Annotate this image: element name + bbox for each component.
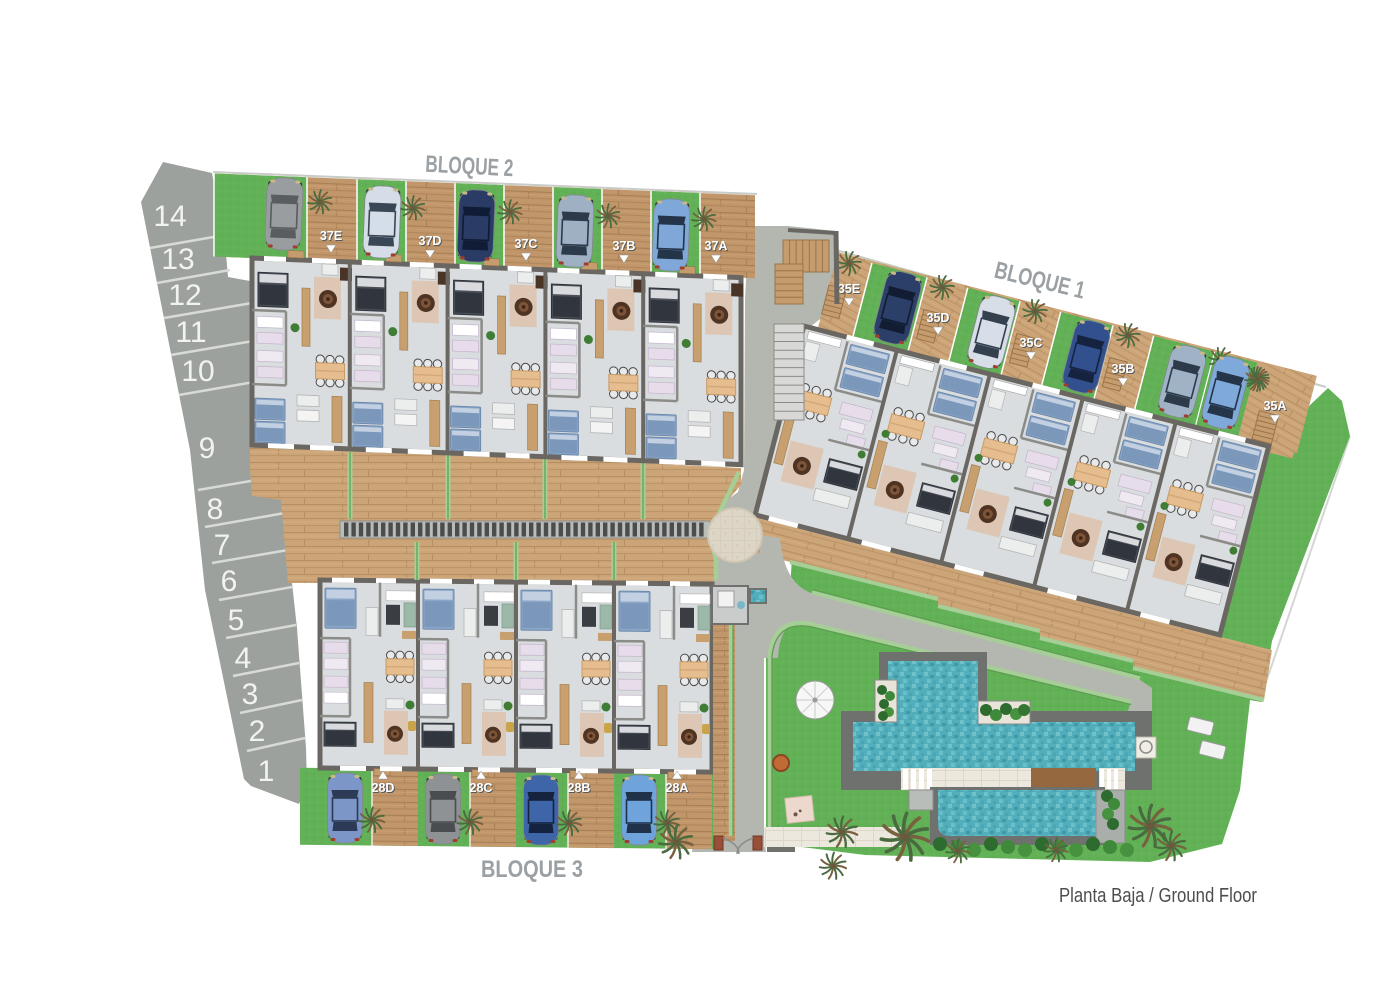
svg-text:35D: 35D [927,311,950,325]
svg-text:35A: 35A [1264,399,1287,413]
svg-text:9: 9 [199,432,216,465]
svg-text:13: 13 [161,243,194,276]
svg-text:37C: 37C [515,237,538,251]
svg-text:37D: 37D [419,234,442,248]
svg-text:28B: 28B [568,781,591,795]
svg-text:11: 11 [175,316,206,349]
svg-text:28C: 28C [470,781,493,795]
svg-text:35C: 35C [1020,336,1043,350]
svg-text:35E: 35E [838,282,860,296]
svg-text:8: 8 [207,493,224,526]
svg-text:BLOQUE 2: BLOQUE 2 [425,151,514,183]
svg-text:10: 10 [181,355,214,388]
svg-text:37A: 37A [705,239,728,253]
svg-text:28A: 28A [666,781,689,795]
svg-text:7: 7 [214,529,231,562]
svg-text:35B: 35B [1112,362,1135,376]
svg-text:37B: 37B [613,239,636,253]
svg-text:Planta Baja / Ground Floor: Planta Baja / Ground Floor [1059,885,1257,907]
svg-text:28D: 28D [372,781,395,795]
svg-text:1: 1 [258,755,275,788]
svg-text:BLOQUE 3: BLOQUE 3 [481,856,583,883]
svg-text:4: 4 [235,642,252,675]
svg-text:37E: 37E [320,229,342,243]
svg-text:14: 14 [153,200,186,233]
svg-text:5: 5 [228,604,245,637]
svg-text:12: 12 [168,279,201,312]
svg-text:2: 2 [249,715,266,748]
svg-text:3: 3 [242,678,259,711]
svg-text:6: 6 [221,565,238,598]
